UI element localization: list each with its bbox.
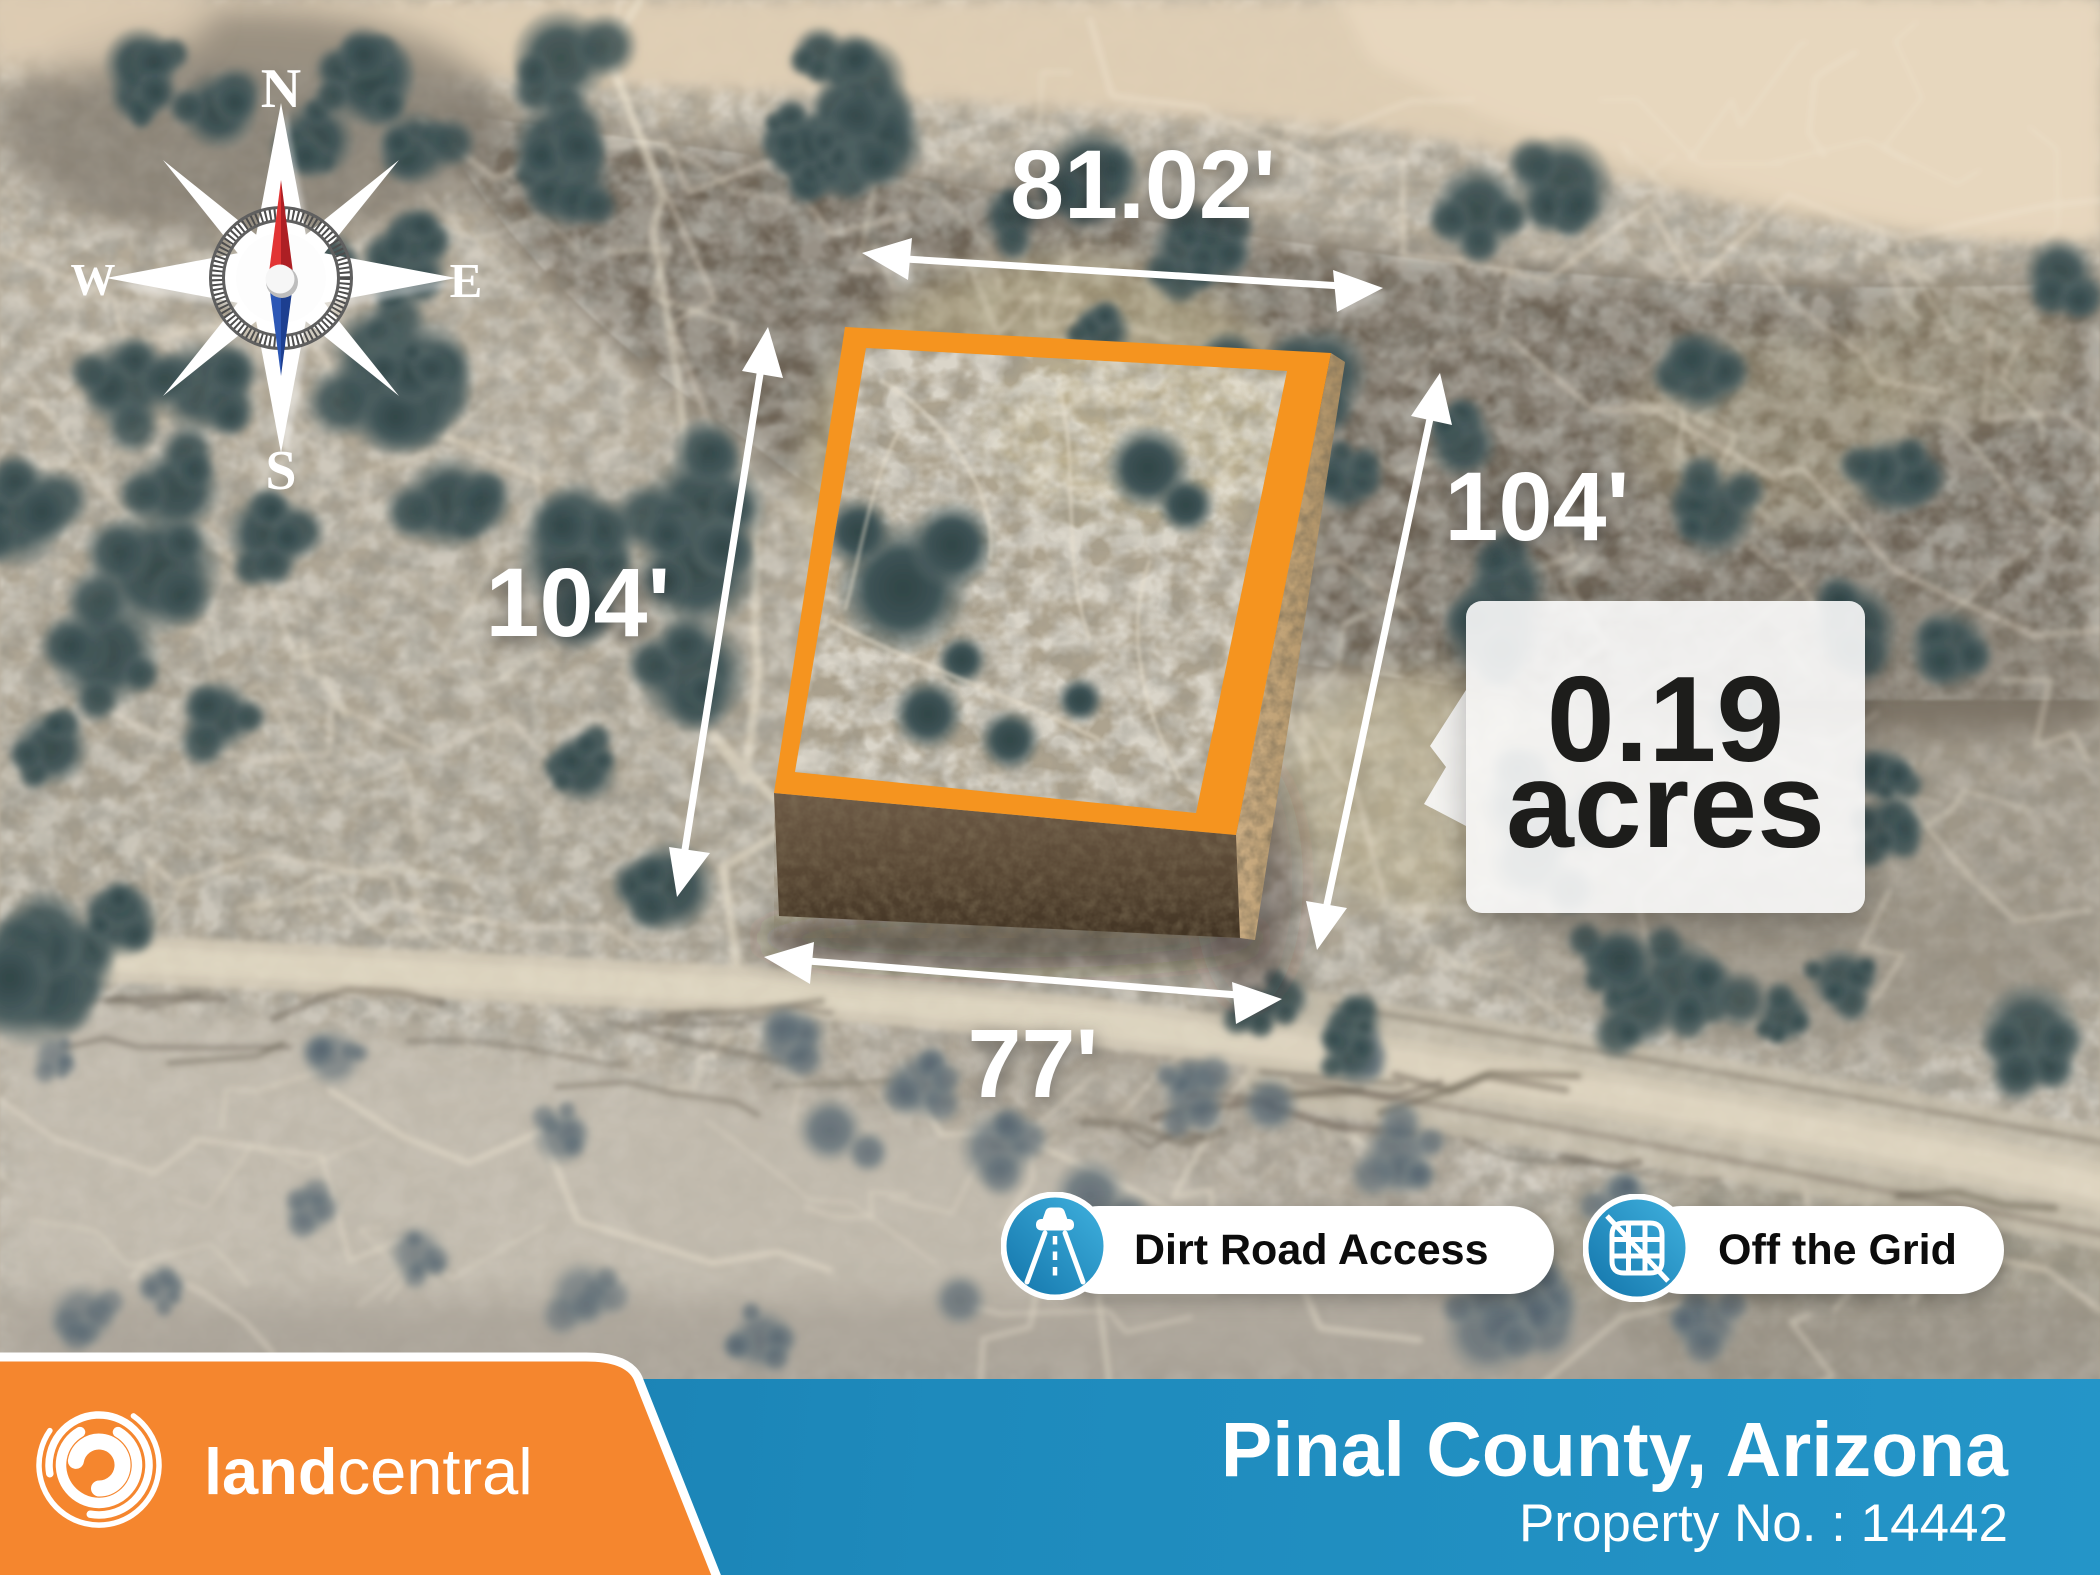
svg-text:W: W [71,255,116,305]
svg-text:S: S [265,440,296,502]
svg-text:N: N [261,58,301,120]
svg-text:E: E [450,253,483,308]
